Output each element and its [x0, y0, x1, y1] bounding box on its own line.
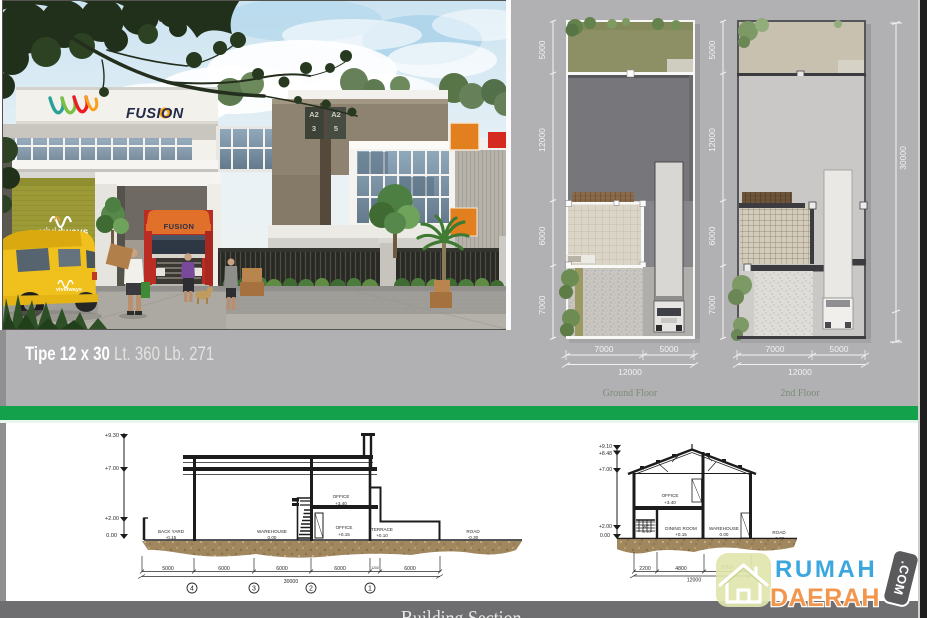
- svg-text:A2: A2: [309, 110, 319, 119]
- svg-text:6000: 6000: [707, 226, 717, 245]
- svg-text:+0.15: +0.15: [675, 532, 687, 537]
- svg-text:+2.00: +2.00: [105, 516, 119, 522]
- svg-text:WAREHOUSE: WAREHOUSE: [257, 529, 287, 534]
- svg-text:+7.00: +7.00: [105, 466, 119, 472]
- svg-text:0.00: 0.00: [268, 535, 277, 540]
- svg-text:+9.10: +9.10: [599, 444, 612, 450]
- svg-text:FUSION: FUSION: [126, 106, 184, 122]
- svg-text:6000: 6000: [334, 566, 346, 572]
- svg-text:+3.40: +3.40: [664, 500, 676, 505]
- svg-text:ROAD: ROAD: [466, 529, 480, 534]
- svg-text:6000: 6000: [276, 566, 288, 572]
- svg-text:3: 3: [252, 586, 256, 593]
- svg-text:7000: 7000: [707, 295, 717, 314]
- svg-text:5000: 5000: [537, 40, 547, 59]
- svg-text:5: 5: [334, 124, 338, 133]
- svg-text:7000: 7000: [537, 295, 547, 314]
- svg-text:4800: 4800: [675, 566, 687, 572]
- svg-text:DINING ROOM: DINING ROOM: [665, 526, 697, 531]
- svg-text:1200: 1200: [371, 566, 379, 570]
- svg-text:12000: 12000: [537, 128, 547, 152]
- svg-text:vividways: vividways: [56, 287, 82, 293]
- svg-text:+0.10: +0.10: [376, 533, 388, 538]
- svg-text:5000: 5000: [660, 344, 679, 354]
- svg-text:-0.30: -0.30: [468, 535, 479, 540]
- svg-text:6000: 6000: [404, 566, 416, 572]
- svg-text:+2.00: +2.00: [599, 524, 612, 530]
- svg-text:-0.10: -0.10: [641, 529, 651, 534]
- svg-text:OFFICE: OFFICE: [333, 494, 350, 499]
- svg-text:30000: 30000: [284, 579, 299, 585]
- svg-text:1: 1: [368, 586, 372, 593]
- svg-text:12000: 12000: [788, 367, 812, 377]
- svg-text:OFFICE: OFFICE: [336, 525, 353, 530]
- svg-text:ROAD: ROAD: [772, 530, 786, 535]
- svg-text:+8.48: +8.48: [599, 451, 612, 457]
- svg-text:2200: 2200: [639, 566, 651, 572]
- svg-text:0.00: 0.00: [600, 533, 610, 539]
- svg-text:Ground Floor: Ground Floor: [603, 388, 658, 399]
- svg-text:WAREHOUSE: WAREHOUSE: [709, 526, 739, 531]
- svg-text:5000: 5000: [830, 344, 849, 354]
- svg-text:0.00: 0.00: [720, 532, 729, 537]
- svg-text:DAERAH: DAERAH: [770, 584, 880, 612]
- svg-text:+0.15: +0.15: [338, 532, 350, 537]
- svg-text:BACK YARD: BACK YARD: [158, 529, 185, 534]
- svg-text:30000: 30000: [898, 146, 908, 170]
- svg-text:RUMAH: RUMAH: [775, 556, 877, 583]
- svg-text:+3.40: +3.40: [335, 501, 347, 506]
- svg-text:+7.00: +7.00: [599, 467, 612, 473]
- svg-text:5000: 5000: [162, 566, 174, 572]
- svg-text:TERRACE: TERRACE: [371, 527, 393, 532]
- svg-text:4: 4: [190, 586, 194, 593]
- svg-text:7000: 7000: [766, 344, 785, 354]
- svg-text:2: 2: [309, 586, 313, 593]
- svg-text:12000: 12000: [618, 367, 642, 377]
- svg-text:-0.15: -0.15: [166, 535, 177, 540]
- svg-text:0.00: 0.00: [106, 533, 117, 539]
- svg-text:5000: 5000: [707, 40, 717, 59]
- svg-text:6000: 6000: [218, 566, 230, 572]
- svg-text:FUSION: FUSION: [164, 222, 195, 231]
- svg-text:6000: 6000: [537, 226, 547, 245]
- svg-text:12000: 12000: [707, 128, 717, 152]
- svg-text:+9.30: +9.30: [105, 433, 119, 439]
- svg-text:7000: 7000: [595, 344, 614, 354]
- svg-text:3: 3: [312, 124, 316, 133]
- svg-text:2nd Floor: 2nd Floor: [780, 388, 820, 399]
- svg-text:OFFICE: OFFICE: [662, 493, 679, 498]
